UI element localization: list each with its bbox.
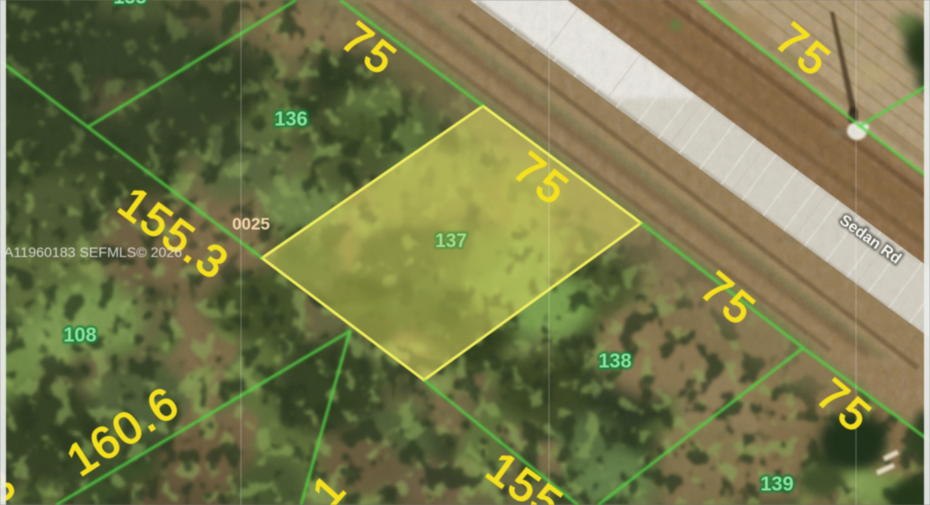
svg-text:137: 137 — [435, 231, 467, 252]
svg-text:A11960183 SEFMLS© 2026: A11960183 SEFMLS© 2026 — [4, 245, 182, 261]
svg-text:0025: 0025 — [232, 214, 270, 233]
svg-text:108: 108 — [63, 324, 96, 346]
svg-text:138: 138 — [598, 350, 631, 372]
svg-text:135: 135 — [113, 0, 146, 8]
svg-text:136: 136 — [274, 108, 307, 130]
svg-text:139: 139 — [760, 473, 793, 495]
